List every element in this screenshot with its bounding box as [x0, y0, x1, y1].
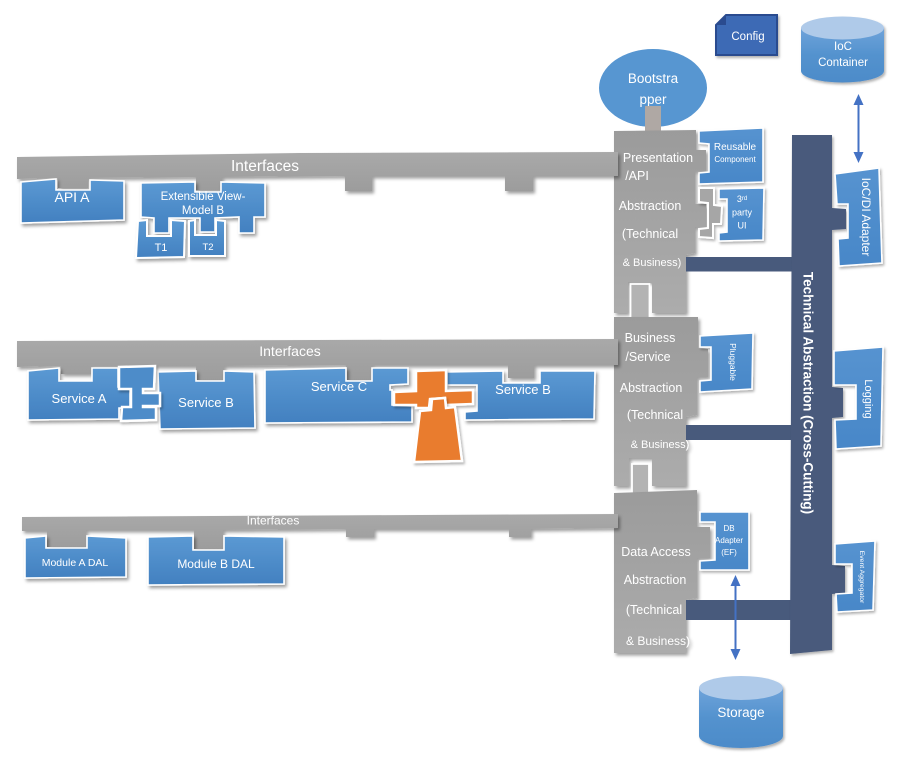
svg-text:pper: pper — [639, 92, 667, 107]
svg-text:(Technical: (Technical — [626, 603, 682, 617]
svg-text:Pluggable: Pluggable — [728, 343, 738, 381]
svg-text:DB: DB — [723, 524, 734, 533]
svg-text:Abstraction: Abstraction — [619, 199, 682, 213]
svg-text:Service B: Service B — [178, 395, 234, 410]
svg-text:Bootstra: Bootstra — [628, 71, 679, 86]
svg-text:Presentation: Presentation — [623, 151, 693, 165]
svg-text:Data Access: Data Access — [621, 545, 690, 559]
svg-text:Storage: Storage — [717, 705, 764, 720]
svg-text:T1: T1 — [155, 242, 168, 254]
svg-text:Technical Abstraction (Cross-C: Technical Abstraction (Cross-Cutting) — [801, 272, 816, 514]
svg-text:(Technical: (Technical — [622, 227, 678, 241]
svg-text:(Technical: (Technical — [627, 408, 683, 422]
svg-text:Event Aggregator: Event Aggregator — [858, 551, 865, 604]
svg-text:/API: /API — [625, 169, 649, 183]
svg-text:Interfaces: Interfaces — [259, 343, 320, 359]
svg-text:IoC: IoC — [834, 41, 852, 53]
svg-text:party: party — [732, 208, 753, 218]
svg-text:Component: Component — [714, 155, 756, 164]
svg-text:/Service: /Service — [625, 350, 670, 364]
svg-text:Abstraction: Abstraction — [624, 573, 687, 587]
svg-text:Adapter: Adapter — [715, 536, 743, 545]
svg-text:Abstraction: Abstraction — [620, 381, 683, 395]
svg-text:UI: UI — [738, 221, 747, 231]
svg-text:& Business): & Business) — [631, 439, 690, 451]
svg-text:Service C: Service C — [311, 379, 367, 394]
svg-text:T2: T2 — [202, 242, 213, 253]
svg-text:API A: API A — [54, 189, 90, 205]
svg-text:& Business): & Business) — [626, 634, 690, 648]
svg-text:Container: Container — [818, 57, 868, 69]
svg-text:Model B: Model B — [182, 205, 225, 217]
svg-text:Config: Config — [731, 31, 764, 43]
svg-text:Service A: Service A — [52, 391, 107, 406]
svg-text:IoC/DI Adapter: IoC/DI Adapter — [859, 178, 873, 257]
svg-text:Business: Business — [625, 331, 676, 345]
svg-text:Service B: Service B — [495, 382, 551, 397]
svg-text:Module A DAL: Module A DAL — [42, 557, 109, 569]
svg-text:& Business): & Business) — [623, 257, 682, 269]
svg-text:Logging: Logging — [862, 379, 874, 418]
svg-text:Extensible View-: Extensible View- — [161, 191, 246, 203]
svg-text:Interfaces: Interfaces — [247, 514, 300, 528]
svg-text:Interfaces: Interfaces — [231, 158, 299, 175]
svg-text:Module B DAL: Module B DAL — [177, 557, 255, 571]
svg-text:(EF): (EF) — [721, 548, 737, 557]
svg-text:Reusable: Reusable — [714, 142, 757, 153]
